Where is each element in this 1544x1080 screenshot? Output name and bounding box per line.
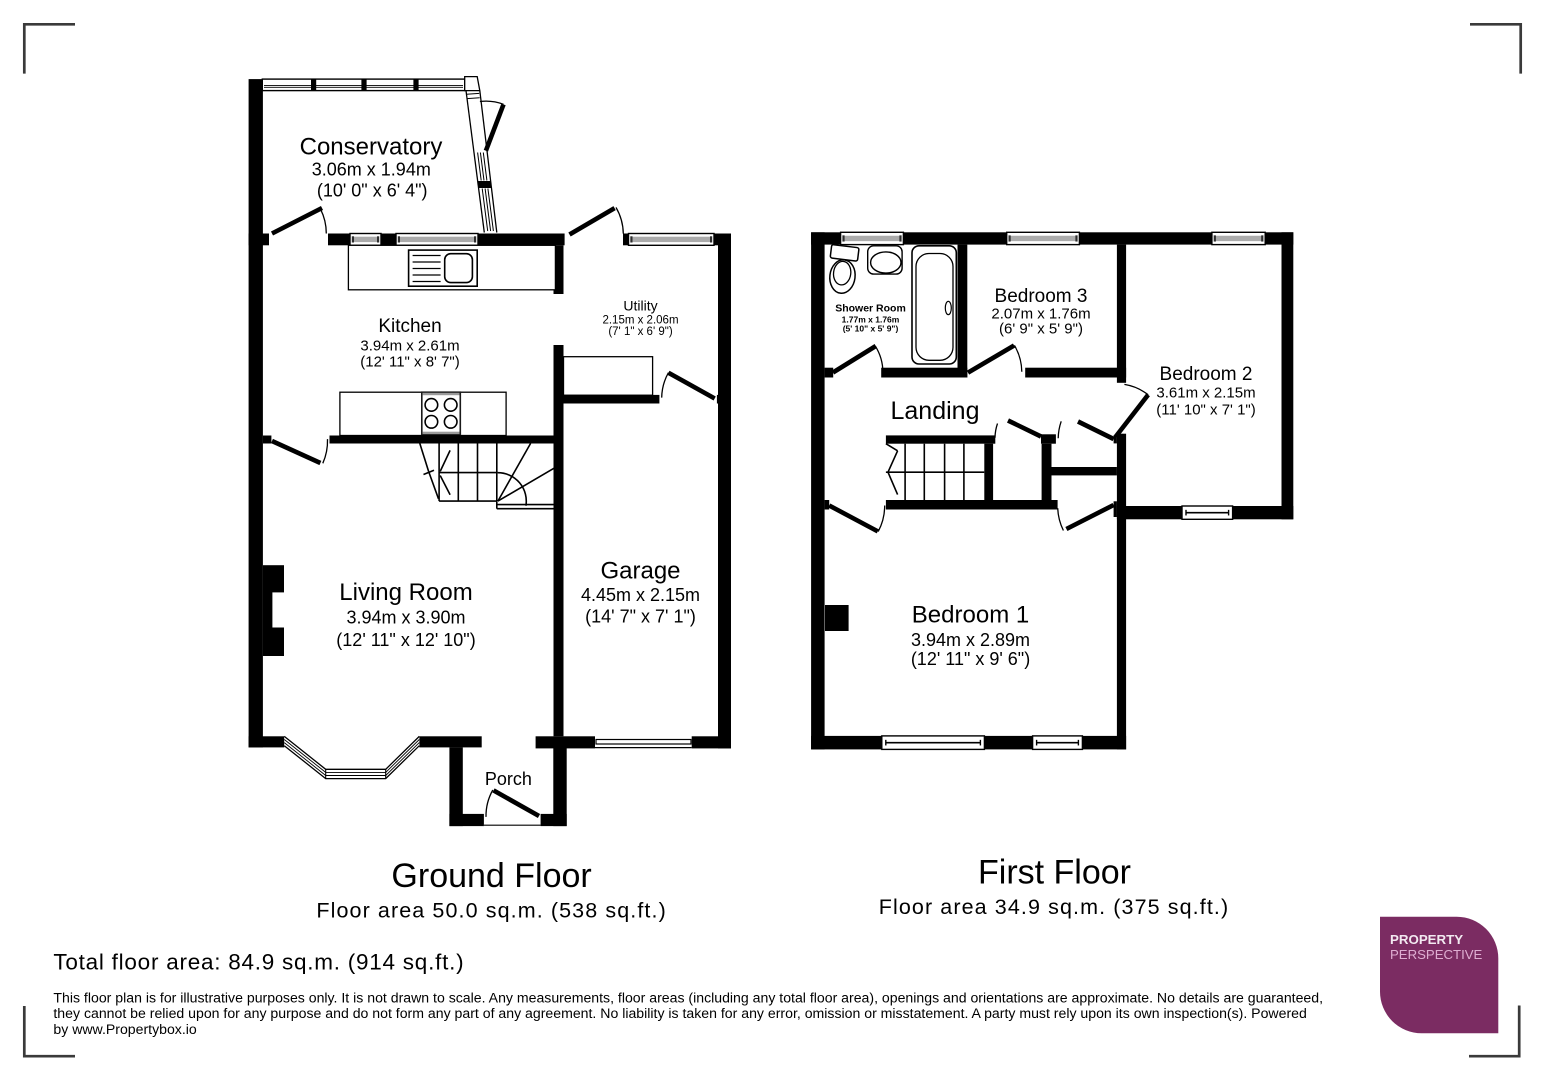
svg-text:(11' 10" x 7' 1"): (11' 10" x 7' 1")	[1156, 402, 1255, 419]
svg-text:Conservatory: Conservatory	[300, 134, 443, 161]
svg-text:(6' 9" x 5' 9"): (6' 9" x 5' 9")	[999, 321, 1083, 338]
svg-text:(10' 0" x 6' 4"): (10' 0" x 6' 4")	[317, 181, 428, 201]
svg-text:This floor plan is for illustr: This floor plan is for illustrative purp…	[53, 989, 1323, 1005]
svg-text:2.15m x 2.06m: 2.15m x 2.06m	[602, 315, 678, 327]
svg-text:(14' 7" x 7' 1"): (14' 7" x 7' 1")	[585, 607, 696, 627]
svg-text:they cannot be relied upon for: they cannot be relied upon for any purpo…	[53, 1005, 1306, 1021]
svg-text:(12' 11" x 12' 10"): (12' 11" x 12' 10")	[336, 630, 475, 650]
svg-text:Garage: Garage	[600, 558, 680, 585]
svg-text:(12' 11" x 9' 6"): (12' 11" x 9' 6")	[911, 649, 1030, 669]
svg-text:by www.Propertybox.io: by www.Propertybox.io	[53, 1021, 197, 1037]
svg-text:(12' 11" x 8' 7"): (12' 11" x 8' 7")	[360, 354, 459, 371]
svg-text:Living Room: Living Room	[339, 579, 472, 606]
svg-text:Shower Room: Shower Room	[835, 302, 906, 314]
svg-text:Bedroom 1: Bedroom 1	[912, 602, 1029, 629]
svg-text:Landing: Landing	[891, 397, 980, 425]
svg-text:Total floor area: 84.9 sq.m. (: Total floor area: 84.9 sq.m. (914 sq.ft.…	[53, 950, 464, 975]
svg-text:Bedroom 3: Bedroom 3	[995, 286, 1088, 307]
svg-text:(5' 10" x 5' 9"): (5' 10" x 5' 9")	[843, 323, 899, 333]
svg-text:3.06m x 1.94m: 3.06m x 1.94m	[312, 160, 431, 180]
svg-text:4.45m x 2.15m: 4.45m x 2.15m	[581, 585, 700, 605]
svg-text:Floor area 34.9 sq.m. (375 sq.: Floor area 34.9 sq.m. (375 sq.ft.)	[879, 895, 1229, 919]
svg-text:3.94m x 3.90m: 3.94m x 3.90m	[346, 608, 465, 628]
svg-text:3.94m x 2.89m: 3.94m x 2.89m	[911, 630, 1030, 650]
svg-text:Bedroom 2: Bedroom 2	[1160, 364, 1253, 385]
svg-text:3.61m x 2.15m: 3.61m x 2.15m	[1156, 384, 1255, 401]
svg-text:Ground Floor: Ground Floor	[391, 857, 591, 895]
svg-text:Utility: Utility	[623, 298, 657, 314]
svg-text:3.94m x 2.61m: 3.94m x 2.61m	[360, 338, 459, 355]
svg-text:Floor area 50.0 sq.m. (538 sq.: Floor area 50.0 sq.m. (538 sq.ft.)	[316, 899, 666, 923]
svg-text:(7' 1" x 6' 9"): (7' 1" x 6' 9")	[608, 326, 672, 338]
svg-text:PROPERTY: PROPERTY	[1390, 932, 1463, 947]
svg-text:PERSPECTIVE: PERSPECTIVE	[1390, 947, 1483, 962]
svg-text:Kitchen: Kitchen	[378, 316, 441, 337]
svg-text:First Floor: First Floor	[978, 854, 1131, 892]
svg-text:Porch: Porch	[485, 769, 532, 789]
